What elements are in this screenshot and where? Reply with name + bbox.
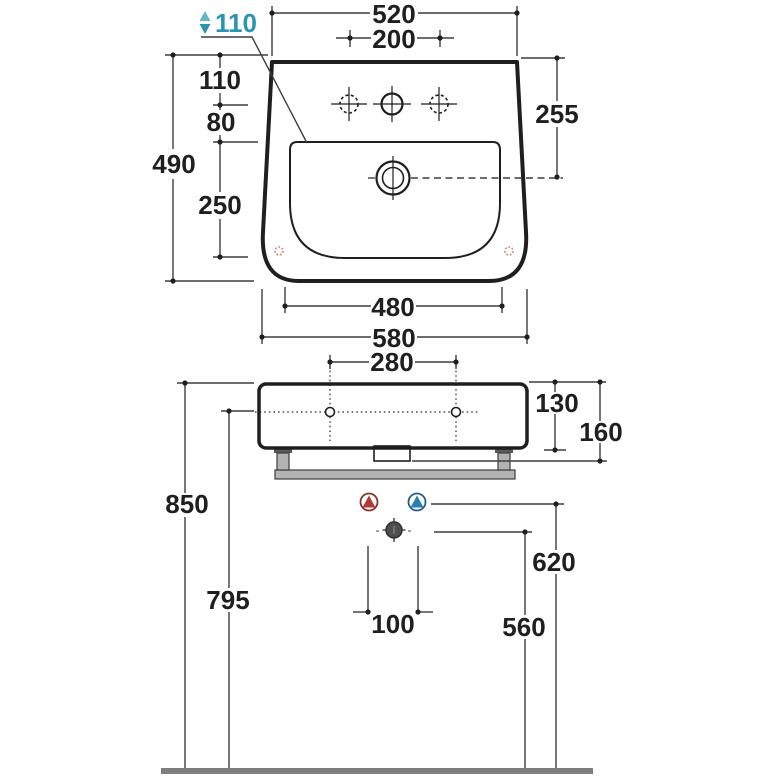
tap-hole-center-icon: [373, 86, 411, 122]
dim-waste-height: 560: [434, 529, 546, 768]
fixing-hole-right-icon: [452, 408, 461, 417]
dim-rim-to-drain: 255: [521, 55, 579, 179]
updown-arrow-icon: [200, 24, 211, 34]
drawing-svg: 520 200 110 490: [0, 0, 776, 776]
dim-label-255: 255: [535, 99, 578, 129]
dim-label-795: 795: [206, 585, 249, 615]
dim-label-620: 620: [532, 547, 575, 577]
basin-inner-outline: [290, 142, 500, 258]
mounting-rail: [275, 470, 515, 479]
dim-label-80: 80: [207, 107, 236, 137]
optional-tap-hole-left-icon: [331, 87, 367, 121]
dim-label-100: 100: [371, 609, 414, 639]
dim-label-490: 490: [152, 149, 195, 179]
dim-label-110: 110: [199, 65, 241, 95]
washbasin-technical-drawing: 520 200 110 490: [0, 0, 776, 776]
floor-line: [161, 768, 593, 774]
dim-fixing-hole-height: 795: [206, 408, 254, 768]
dim-supply-spacing: 100: [353, 546, 433, 639]
dim-basin-inner-width: 480: [282, 287, 504, 322]
cold-water-icon: [409, 494, 426, 511]
dim-label-200: 200: [372, 24, 415, 54]
optional-fixing-mark-right-icon: [505, 247, 513, 255]
optional-fixing-mark-left-icon: [275, 247, 283, 255]
dim-fixing-hole-spacing: 280: [327, 347, 458, 377]
dim-rim-height: 850: [165, 380, 254, 768]
dim-inner-column: 110 80 250: [198, 52, 258, 259]
dim-label-850: 850: [165, 489, 208, 519]
dim-label-110-teal: 110: [215, 8, 257, 38]
hot-water-icon: [361, 494, 378, 511]
basin-side-profile: [259, 384, 527, 448]
dim-label-280: 280: [370, 347, 413, 377]
dim-label-160: 160: [579, 417, 622, 447]
left-bracket: [277, 453, 289, 470]
front-view: 520 200 110 490: [152, 0, 578, 353]
fixing-hole-left-icon: [326, 408, 335, 417]
dim-label-130: 130: [535, 388, 578, 418]
dim-label-480: 480: [371, 292, 414, 322]
dim-tap-hole-spacing: 200: [336, 24, 454, 54]
optional-tap-hole-right-icon: [421, 87, 457, 121]
installation-view: 280 130 160 850: [161, 347, 623, 774]
dim-label-250: 250: [198, 190, 241, 220]
updown-arrow-icon: [200, 11, 211, 21]
dim-body-with-bracket: 160: [412, 379, 623, 463]
drain-hole-icon: [368, 156, 563, 200]
waste-outlet-icon: [376, 518, 411, 542]
dim-label-560: 560: [502, 612, 545, 642]
